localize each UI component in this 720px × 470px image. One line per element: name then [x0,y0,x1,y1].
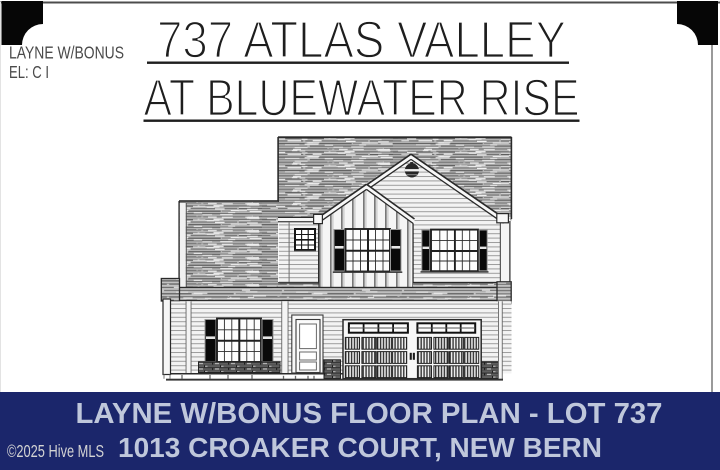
svg-text:EL: C I: EL: C I [9,62,49,82]
svg-text:737 ATLAS VALLEY: 737 ATLAS VALLEY [157,11,566,69]
svg-text:LAYNE W/BONUS: LAYNE W/BONUS [9,43,124,63]
svg-text:LAYNE W/BONUS FLOOR PLAN - LOT: LAYNE W/BONUS FLOOR PLAN - LOT 737 [76,398,663,430]
svg-text:AT BLUEWATER RISE: AT BLUEWATER RISE [144,68,580,126]
svg-text:©2025 Hive MLS: ©2025 Hive MLS [7,441,104,461]
svg-text:1013 CROAKER COURT, NEW BERN: 1013 CROAKER COURT, NEW BERN [118,432,602,463]
